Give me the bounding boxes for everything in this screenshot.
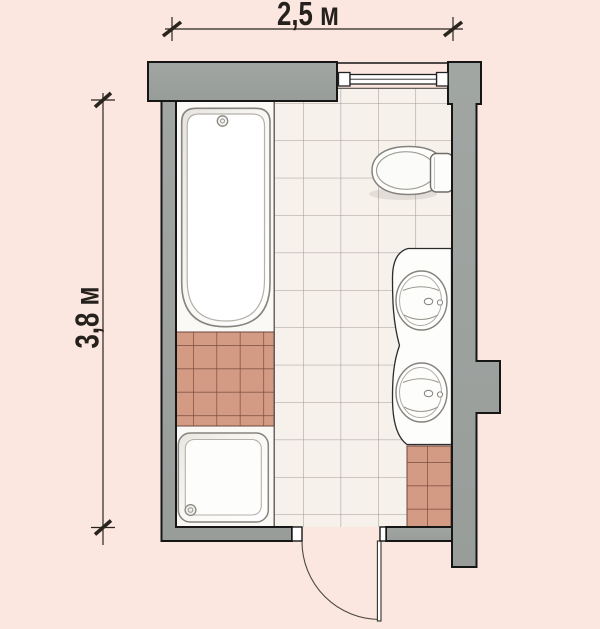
window-jamb-right — [437, 73, 449, 87]
door — [302, 541, 381, 621]
faucet-icon — [424, 390, 432, 396]
accent-tiles-left — [176, 332, 274, 426]
toilet — [369, 147, 453, 201]
sink-inner — [400, 368, 442, 418]
toilet-bowl-inner — [377, 152, 436, 190]
door-swing-arc — [302, 542, 380, 620]
shower-drain-icon — [185, 505, 196, 516]
bathtub — [182, 108, 270, 326]
vanity-counter — [393, 249, 452, 445]
sink-bottom — [396, 363, 447, 422]
width-dimension-label: 2,5 м — [265, 0, 351, 32]
bathtub-drain-icon — [217, 116, 227, 126]
door-leaf — [377, 541, 381, 621]
sink-top — [396, 271, 447, 330]
window-recess-grid — [337, 88, 448, 101]
shower-tray-inner — [185, 440, 261, 516]
window-jamb-left — [339, 73, 351, 87]
accent-tiles-right — [407, 446, 452, 527]
wall-top — [148, 62, 337, 101]
shower-tray — [178, 433, 268, 522]
door-jamb-right — [380, 527, 386, 541]
height-dimension-label: 3,8 м — [70, 282, 103, 352]
wall-bottom-right — [386, 527, 452, 541]
toilet-tank — [431, 154, 454, 193]
window — [337, 63, 448, 86]
faucet-handle-icon — [437, 300, 442, 305]
door-jamb-left — [292, 527, 302, 541]
sink-inner — [400, 276, 442, 326]
faucet-icon — [424, 298, 432, 304]
bathroom-floor-plan: 2,5 м 3,8 м — [0, 0, 600, 629]
faucet-handle-icon — [437, 392, 442, 397]
bathtub-inner — [187, 114, 264, 321]
wall-right — [448, 62, 500, 567]
